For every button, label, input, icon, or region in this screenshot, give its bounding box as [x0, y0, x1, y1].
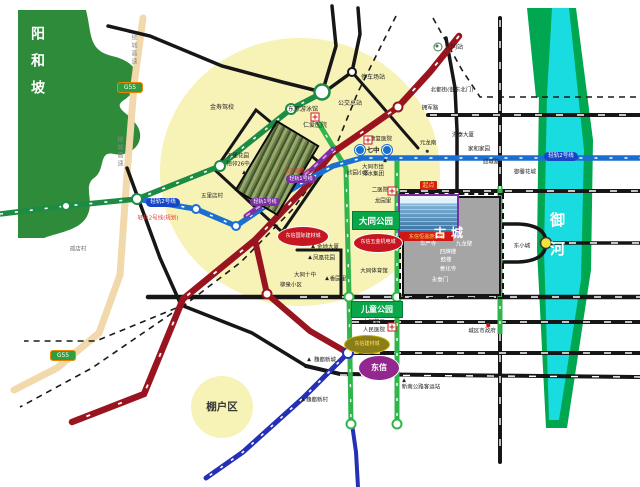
metro-badge-right	[382, 145, 392, 155]
place-dot-icon	[426, 150, 429, 153]
label-yuxin-town: 御馨花城	[514, 170, 536, 176]
region-label-yanghepo: 阳和坡	[30, 26, 44, 107]
label-hongtai-tower: 洪泰大厦	[452, 133, 474, 139]
label-jindi-tower: 金地大厦	[317, 245, 339, 251]
label-nine-dragon-wall: 九龙壁	[456, 242, 473, 248]
label-water-group-1: 大同市给	[362, 165, 384, 171]
building-icon: ▲	[383, 159, 387, 164]
label-weidu-xincun: 魏都新村	[306, 398, 328, 404]
river-label: 御河	[549, 212, 564, 270]
ancient-city-label: 古城	[434, 227, 468, 239]
project-marker-home-plaza: 东信建材城	[344, 335, 390, 354]
city-location-map: 东信恒温游泳馆 大同公园 儿童公园 东信国际建材城 东信五金机电城 东信建材城 …	[0, 0, 640, 487]
hospital-cross-icon	[388, 187, 397, 196]
label-longyuanli: 龙园里	[375, 199, 392, 205]
datong-park-box: 大同公园	[352, 211, 400, 230]
label-xiangyuanli: 香园里	[330, 277, 347, 283]
bus-station-icon: ▲	[402, 379, 406, 384]
children-park-box: 儿童公园	[351, 301, 403, 318]
label-huayan-temple: 华严寺	[420, 242, 437, 248]
label-bus-terminal: 公交总站	[338, 101, 362, 107]
label-driving-school: 金寿驾校	[210, 105, 234, 111]
region-label-shanty: 棚户区	[206, 402, 238, 413]
label-dongxiaocheng: 东小城	[514, 244, 531, 250]
label-renai-hospital: 仁爱医院	[303, 123, 327, 129]
building-icon: ▲	[301, 398, 305, 403]
label-wuli-garden-2: 相邻26中	[226, 162, 250, 168]
project-marker-dongxin: 东信	[358, 355, 400, 381]
hospital-cross-icon	[364, 136, 373, 145]
project-marker-hardware: 东信五金机电城	[353, 233, 403, 253]
label-yingcheng-road: 迎城路	[483, 160, 500, 166]
hospital-cross-icon	[388, 323, 397, 332]
label-train-station: 大同站	[445, 45, 463, 51]
label-rail2-planned: 轻轨2号线(规划)	[138, 216, 179, 222]
hospital-cross-icon	[311, 113, 320, 122]
label-water-group-2: 排水集团	[362, 172, 384, 178]
building-icon: ▲	[242, 171, 246, 176]
rail2-badge-east: 轻轨2号线	[544, 152, 578, 161]
rail-start-tag: 起点	[420, 181, 437, 190]
label-no3-hospital-1: 大同第三	[363, 320, 385, 326]
label-beidu-street: 北都街(御东北门)	[431, 88, 474, 94]
government-dot-icon	[486, 323, 490, 327]
label-bus-hub: 公交枢纽站	[284, 170, 309, 175]
building-icon: ▲	[308, 256, 312, 261]
building-icon: ▲	[325, 277, 329, 282]
label-rehab-hospital: 康复医院	[370, 137, 392, 143]
label-shanhua-temple: 善化寺	[440, 267, 457, 273]
metro-badge-left	[355, 145, 365, 155]
rail1-badge-upper: 轻轨1号线	[286, 175, 316, 183]
label-gudian-village: 孤店村	[70, 247, 87, 253]
label-weidu-xincheng: 魏都新城	[314, 358, 336, 364]
label-phoenix-garden: 凤凰花园	[313, 256, 335, 262]
expressway-badge-north: G55	[117, 82, 143, 93]
label-wulidian-village: 五里店村	[201, 194, 223, 200]
label-liuquan: 柳泉小区	[280, 283, 302, 289]
label-sipailou: 四牌楼	[440, 250, 457, 256]
expressway-name-mid: 绕城高速	[116, 136, 122, 168]
rail2-badge-west: 轻轨2号线	[146, 198, 180, 207]
label-yuanlongnan: 元龙南	[420, 141, 437, 147]
label-no7-school: 七中	[367, 147, 380, 154]
expressway-badge-south: G55	[50, 350, 76, 361]
label-no10-school: 大同十中	[294, 273, 316, 279]
label-parking-station: 停车场站	[361, 75, 385, 81]
label-coach-station: 新南公路客运站	[402, 385, 441, 391]
building-icon: ▲	[307, 358, 311, 363]
building-icon: ▲	[311, 245, 315, 250]
expressway-name-north: 绕城高速	[130, 34, 136, 66]
label-yongjun-road: 拥军路	[422, 106, 439, 112]
label-no3-hospital-2: 人民医院	[363, 328, 385, 334]
train-station-icon	[434, 43, 443, 52]
label-wuli-garden: 五里花园	[227, 154, 249, 160]
label-gymnasium: 大同体育馆	[360, 269, 388, 275]
label-jiahe-homes: 家和家园	[468, 147, 490, 153]
label-drum-tower: 鼓楼	[440, 258, 451, 264]
label-district-government: 城区市政府	[468, 329, 496, 335]
rail1-badge-lower: 轻轨1号线	[250, 198, 280, 206]
label-no2-hospital: 二医院	[372, 188, 389, 194]
label-yongtai-gate: 永泰门	[432, 278, 449, 284]
